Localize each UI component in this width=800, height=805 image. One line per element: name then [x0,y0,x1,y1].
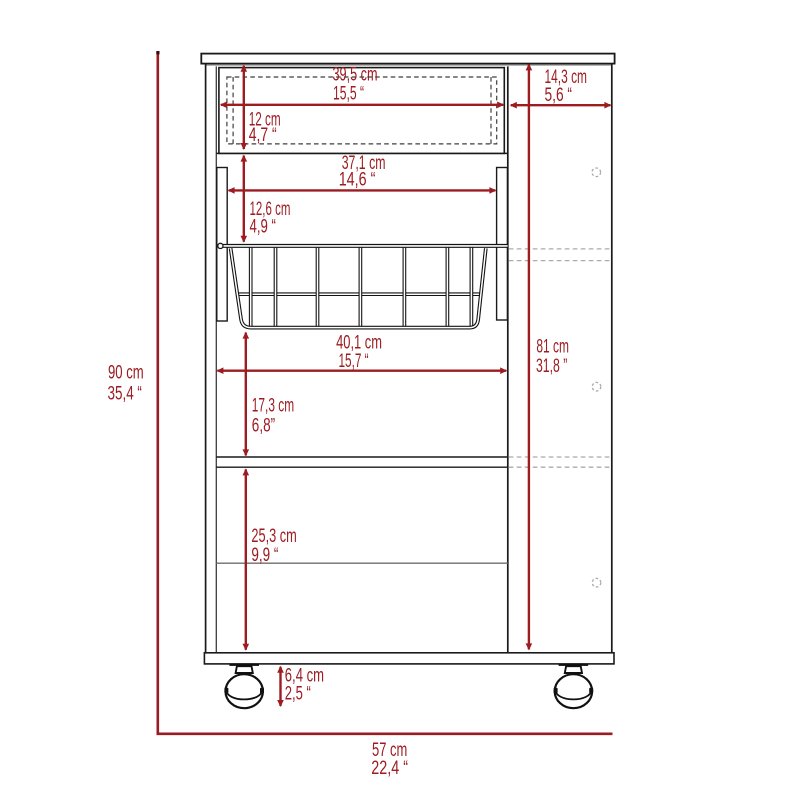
svg-text:17,3 cm: 17,3 cm [252,394,294,416]
svg-text:6,8”: 6,8” [252,414,275,436]
svg-text:4,9 “: 4,9 “ [250,215,276,237]
svg-text:5,6 “: 5,6 “ [545,84,573,106]
svg-text:35,4 “: 35,4 “ [108,382,142,404]
svg-text:22,4 “: 22,4 “ [371,757,408,779]
svg-text:4,7 “: 4,7 “ [249,124,277,146]
svg-text:15,5 “: 15,5 “ [333,83,364,105]
svg-text:90 cm: 90 cm [108,361,144,383]
svg-text:31,8 ”: 31,8 ” [536,355,567,377]
svg-text:2,5 “: 2,5 “ [285,682,311,704]
svg-text:14,6 “: 14,6 “ [339,169,376,191]
svg-text:15,7 “: 15,7 “ [339,350,369,372]
svg-text:9,9 “: 9,9 “ [251,544,278,566]
